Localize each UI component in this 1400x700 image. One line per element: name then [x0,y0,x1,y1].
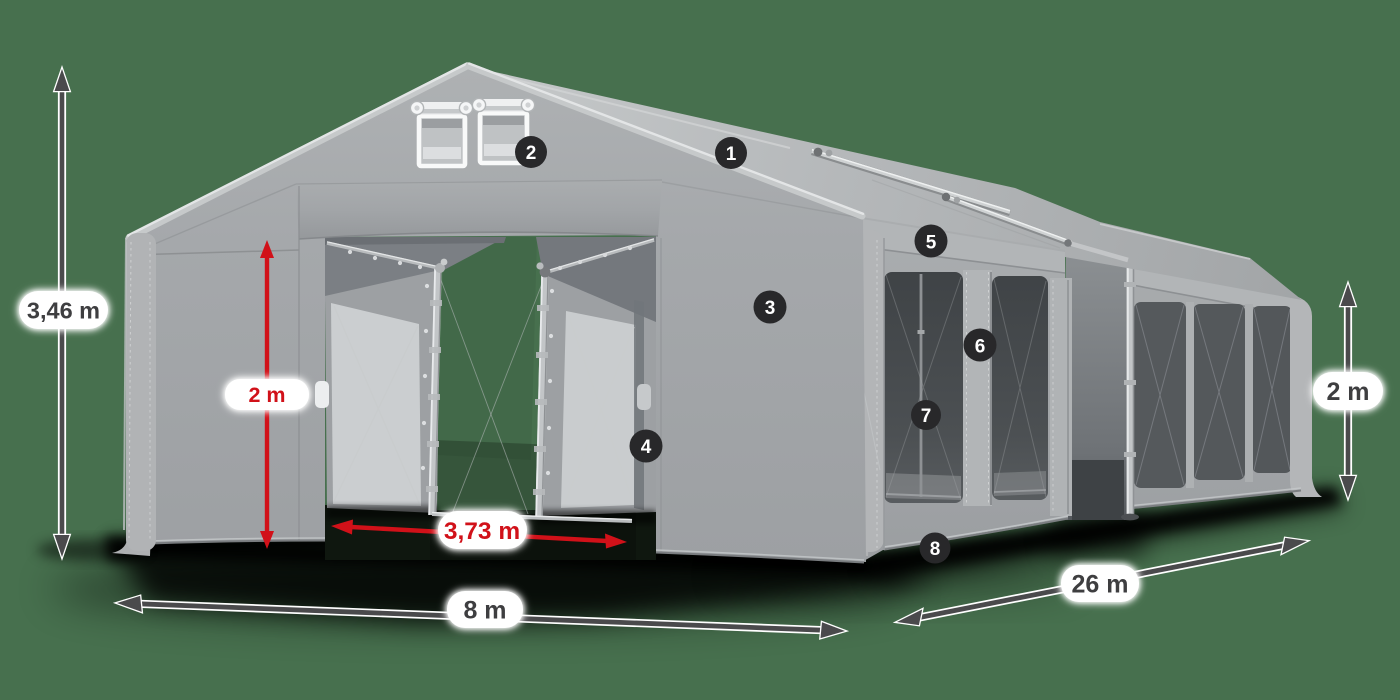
svg-text:8: 8 [930,539,941,560]
svg-text:8 m: 8 m [463,597,506,625]
svg-text:2 m: 2 m [248,383,285,407]
svg-text:4: 4 [641,437,652,458]
svg-text:5: 5 [926,233,937,254]
svg-text:6: 6 [975,337,986,358]
svg-text:2: 2 [526,143,537,164]
svg-text:26 m: 26 m [1072,571,1129,599]
svg-text:2 m: 2 m [1326,378,1369,406]
svg-text:3: 3 [765,298,776,319]
svg-text:3,73 m: 3,73 m [444,518,520,545]
svg-text:3,46 m: 3,46 m [27,298,100,324]
svg-text:7: 7 [921,406,932,427]
svg-text:1: 1 [726,144,737,165]
